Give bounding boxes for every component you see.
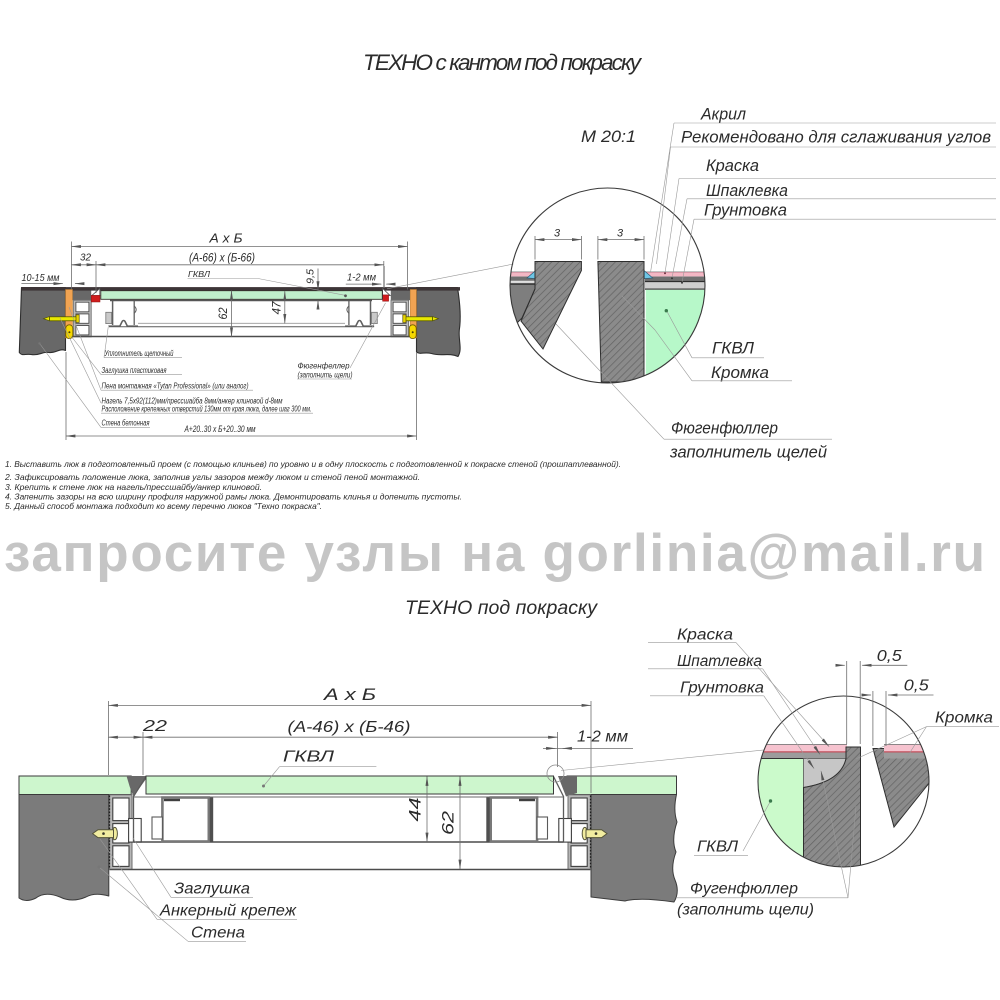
svg-text:М 20:1: М 20:1 xyxy=(581,127,636,146)
svg-text:Уплотнитель щеточный: Уплотнитель щеточный xyxy=(104,349,174,358)
svg-text:Шпатлевка: Шпатлевка xyxy=(677,653,762,670)
svg-text:Рекомендовано для сглаживания: Рекомендовано для сглаживания углов xyxy=(681,129,991,147)
svg-text:(А-66) х (Б-66): (А-66) х (Б-66) xyxy=(189,251,255,265)
svg-text:0,5: 0,5 xyxy=(904,678,929,695)
svg-text:Кромка: Кромка xyxy=(935,710,993,727)
svg-text:ГКВЛ: ГКВЛ xyxy=(188,269,210,279)
svg-text:47: 47 xyxy=(269,300,283,314)
svg-text:ТЕХНО с кантом под покраску: ТЕХНО с кантом под покраску xyxy=(363,50,643,75)
svg-text:А+20..30 х Б+20..30 мм: А+20..30 х Б+20..30 мм xyxy=(184,424,256,434)
svg-text:3. Крепить к стене люк на наге: 3. Крепить к стене люк на нагель/прессша… xyxy=(5,482,262,492)
svg-text:2. Зафиксировать положение люк: 2. Зафиксировать положение люка, заполни… xyxy=(4,472,420,482)
svg-text:0,5: 0,5 xyxy=(877,648,902,665)
svg-text:А х Б: А х Б xyxy=(323,686,377,704)
svg-text:ТЕХНО под покраску: ТЕХНО под покраску xyxy=(405,597,598,619)
svg-text:Фугенфюллер: Фугенфюллер xyxy=(690,881,798,898)
svg-text:32: 32 xyxy=(80,252,91,264)
svg-text:Стена: Стена xyxy=(191,925,245,942)
svg-text:3: 3 xyxy=(554,228,561,240)
svg-text:Пена монтажная «Tytan Professi: Пена монтажная «Tytan Professional» (или… xyxy=(102,381,249,390)
svg-text:ГКВЛ: ГКВЛ xyxy=(283,749,334,766)
svg-text:Анкерный крепеж: Анкерный крепеж xyxy=(159,903,297,920)
svg-text:запросите узлы на gorlinia@mai: запросите узлы на gorlinia@mail.ru xyxy=(4,524,985,583)
svg-text:1. Выставить люк в подготовлен: 1. Выставить люк в подготовленный проем … xyxy=(5,459,621,469)
svg-text:Грунтовка: Грунтовка xyxy=(680,680,764,697)
svg-text:Заглушка: Заглушка xyxy=(174,881,250,898)
svg-text:10-15 мм: 10-15 мм xyxy=(22,272,60,284)
svg-text:Краска: Краска xyxy=(677,627,733,644)
svg-text:62: 62 xyxy=(216,307,230,319)
svg-text:ГКВЛ: ГКВЛ xyxy=(697,839,738,856)
svg-text:1-2 мм: 1-2 мм xyxy=(347,272,376,284)
svg-text:4. Запенить зазоры на всю шири: 4. Запенить зазоры на всю ширину профиля… xyxy=(5,492,462,502)
svg-text:Фюгенфеллер: Фюгенфеллер xyxy=(298,361,351,370)
svg-text:(А-46) х (Б-46): (А-46) х (Б-46) xyxy=(288,719,411,736)
svg-text:Расположение крепежных отверст: Расположение крепежных отверстий 130мм о… xyxy=(102,404,312,413)
svg-text:1-2 мм: 1-2 мм xyxy=(577,729,628,746)
svg-text:Грунтовка: Грунтовка xyxy=(704,202,787,220)
svg-text:44: 44 xyxy=(407,798,425,822)
svg-text:Заглушка пластиковая: Заглушка пластиковая xyxy=(102,366,168,375)
svg-text:62: 62 xyxy=(440,811,458,835)
svg-text:ГКВЛ: ГКВЛ xyxy=(712,340,755,358)
svg-text:9,5: 9,5 xyxy=(305,269,317,284)
svg-text:(заполнить щели): (заполнить щели) xyxy=(298,370,353,379)
svg-text:Кромка: Кромка xyxy=(711,364,769,382)
svg-text:22: 22 xyxy=(142,718,168,735)
svg-text:Фюгенфюллер: Фюгенфюллер xyxy=(671,420,778,438)
svg-text:3: 3 xyxy=(617,228,624,240)
svg-text:Стена бетонная: Стена бетонная xyxy=(102,419,151,428)
svg-text:заполнитель щелей: заполнитель щелей xyxy=(669,444,827,462)
svg-text:А х Б: А х Б xyxy=(208,232,242,246)
svg-text:5. Данный способ монтажа подхо: 5. Данный способ монтажа подходит ко все… xyxy=(5,501,322,511)
svg-text:Шпаклевка: Шпаклевка xyxy=(706,182,788,200)
svg-text:(заполнить щели): (заполнить щели) xyxy=(677,902,814,919)
svg-text:Краска: Краска xyxy=(706,157,759,175)
svg-text:Акрил: Акрил xyxy=(700,106,746,124)
